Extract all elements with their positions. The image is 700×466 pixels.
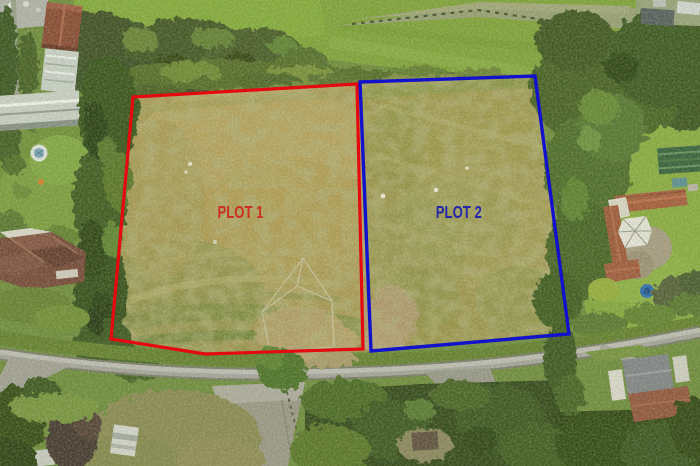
svg-text:PLOT 2: PLOT 2	[436, 202, 482, 222]
svg-text:PLOT 1: PLOT 1	[218, 202, 264, 222]
